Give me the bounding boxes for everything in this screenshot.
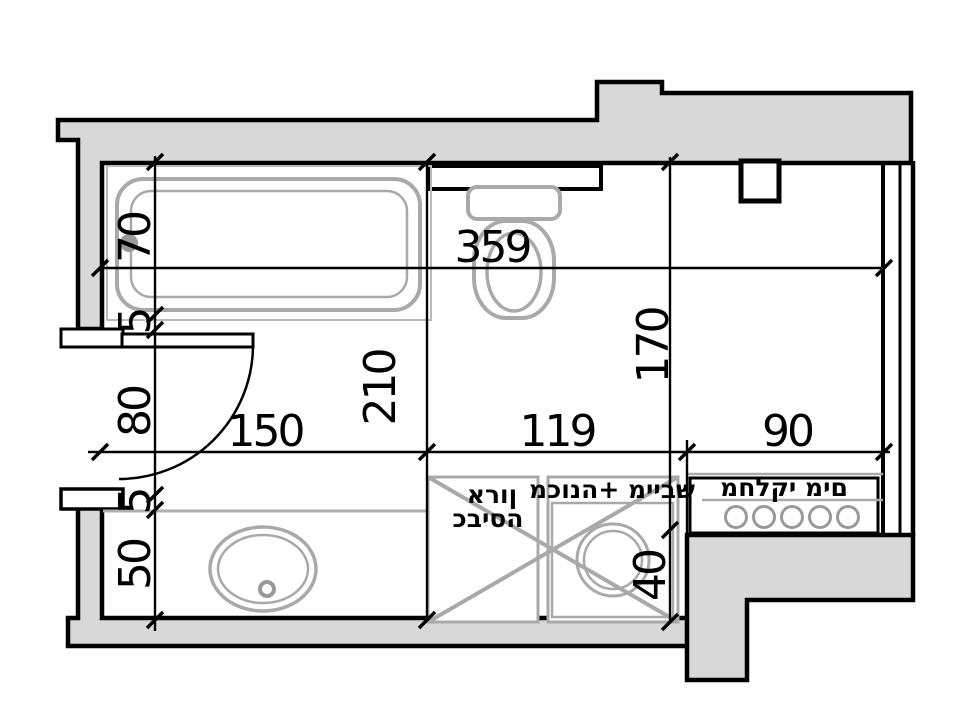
dim-text-50: 50 <box>110 539 161 590</box>
dim-text-210: 210 <box>355 350 406 426</box>
toilet-tank <box>468 187 560 219</box>
sink-drain <box>260 582 274 596</box>
wall-bottom-right-block <box>687 535 913 680</box>
washer-dryer-label: מכונה+ מייבש <box>529 475 695 504</box>
bathtub-rim <box>117 179 420 310</box>
manifold-valve-3 <box>782 507 803 528</box>
duct-niche <box>741 161 779 201</box>
manifold-valve-4 <box>810 507 831 528</box>
manifold-valve-5 <box>838 507 859 528</box>
dim-text-80: 80 <box>110 386 161 437</box>
floor-plan-canvas: 359 150 119 90 70 5 80 5 50 210 170 40 א… <box>0 0 956 703</box>
laundry-cabinet-label-line2: כביסה <box>453 504 524 533</box>
dim-text-5a: 5 <box>110 310 161 335</box>
dim-text-150: 150 <box>228 406 304 457</box>
door-leaf <box>122 334 253 347</box>
floor-plan-drawing: 359 150 119 90 70 5 80 5 50 210 170 40 א… <box>0 0 956 703</box>
manifold-valve-1 <box>726 507 747 528</box>
dim-text-40: 40 <box>625 550 676 601</box>
water-manifold-label: מחלקי מים <box>720 473 848 502</box>
dim-text-359: 359 <box>455 222 530 273</box>
dim-text-5b: 5 <box>110 490 161 515</box>
dim-text-70: 70 <box>110 212 161 263</box>
dim-text-170: 170 <box>628 308 679 384</box>
dim-text-119: 119 <box>520 406 595 457</box>
dim-text-90: 90 <box>762 406 813 457</box>
manifold-valve-2 <box>754 507 775 528</box>
sink-rim <box>210 527 316 611</box>
